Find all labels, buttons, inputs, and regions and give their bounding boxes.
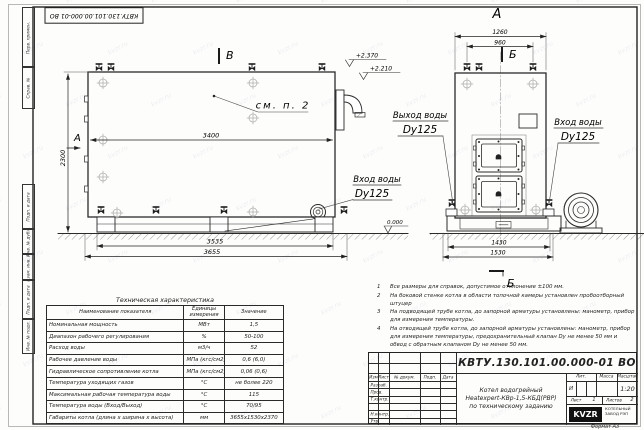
valve-icons-side bbox=[96, 64, 347, 214]
spec-header-value: Значение bbox=[224, 306, 283, 320]
drawing-sheet: kvzr.rukvzr.rukvzr.rukvzr.rukvzr.rukvzr.… bbox=[0, 0, 644, 430]
boiler-body-side bbox=[88, 72, 335, 217]
notes-list: 1Все размеры для справок, допустимое отк… bbox=[377, 284, 635, 351]
spec-table-title: Техническая характеристика bbox=[46, 297, 284, 304]
lit-value: И bbox=[569, 386, 573, 392]
svg-text:см. п. 2: см. п. 2 bbox=[256, 101, 311, 112]
elevation-marks: +2.370 +2.210 0.000 bbox=[346, 53, 409, 234]
row-label-utv: Утв. bbox=[371, 419, 380, 424]
mass-header: Масса bbox=[600, 375, 614, 380]
side-view: В см. п. 2 А +2.370 +2.210 0.000 bbox=[58, 49, 408, 261]
rev-header-list: Лист bbox=[378, 375, 389, 380]
callout-see-note: см. п. 2 bbox=[213, 95, 311, 112]
product-name: Котел водогрейный Heatexpert-КВр-1,5-КБД… bbox=[456, 373, 566, 425]
door-handle-icon bbox=[496, 154, 502, 159]
title-block: Изм Лист № докум. Подп. Дата Разраб. Про… bbox=[368, 352, 637, 424]
ground-hatch-front bbox=[430, 234, 644, 240]
svg-text:Выход воды: Выход воды bbox=[393, 111, 447, 121]
rev-header-podp: Подп. bbox=[424, 375, 437, 380]
table-row: Диапазон рабочего регулирования%50-100 bbox=[47, 331, 284, 343]
table-row: Габариты котла (длина х ширина х высота)… bbox=[47, 412, 284, 424]
svg-text:А: А bbox=[73, 133, 81, 144]
sheet-value: 1 bbox=[592, 397, 595, 403]
rotated-doc-number: КВТУ.130.101.00.000-01 ВО bbox=[50, 12, 139, 19]
svg-text:3400: 3400 bbox=[203, 132, 220, 140]
margin-box-sprav: Справ. № bbox=[22, 66, 35, 109]
table-row: Расход водым3/ч52 bbox=[47, 343, 284, 355]
spec-header-name: Наименование показателя bbox=[47, 306, 184, 320]
flue-duct bbox=[336, 90, 365, 130]
side-inlet-label: Вход воды Dy125 bbox=[319, 175, 401, 209]
lifting-mark-icon bbox=[461, 78, 473, 90]
table-row: Рабочее давление водыМПа (кгс/см2)0,6 (6… bbox=[47, 354, 284, 366]
blower-fan bbox=[560, 193, 602, 233]
table-row: Температура уходящих газов°Сне более 220 bbox=[47, 377, 284, 389]
format-label: Формат А3 bbox=[572, 424, 638, 430]
svg-text:+2.210: +2.210 bbox=[370, 66, 392, 73]
svg-text:Вход воды: Вход воды bbox=[353, 175, 401, 185]
section-mark-b-top: Б bbox=[502, 48, 517, 61]
sheet-label: Лист bbox=[571, 398, 582, 403]
svg-text:Dy125: Dy125 bbox=[403, 124, 438, 136]
front-dimensions: 1260 960 1430 1530 bbox=[443, 29, 553, 261]
row-label-tkontr: Т.контр. bbox=[371, 397, 389, 402]
front-view-title: А bbox=[492, 7, 502, 22]
note-item: 4На отводящей трубе котла, до запорной а… bbox=[377, 326, 635, 349]
svg-text:3655: 3655 bbox=[204, 248, 221, 256]
view-arrow-a: А bbox=[67, 133, 81, 148]
margin-box-inv-podl: Инв. № подл. bbox=[22, 318, 35, 354]
svg-text:3535: 3535 bbox=[207, 238, 224, 246]
svg-text:Вход воды: Вход воды bbox=[554, 118, 602, 128]
row-label-prov: Пров. bbox=[371, 390, 383, 395]
svg-text:1260: 1260 bbox=[492, 29, 507, 36]
kvzr-logo: KVZR bbox=[569, 407, 602, 422]
front-view: А bbox=[393, 7, 644, 290]
svg-text:2300: 2300 bbox=[59, 150, 67, 167]
note-item: 3На подводящей трубе котла, до запорной … bbox=[377, 309, 635, 325]
svg-text:960: 960 bbox=[494, 40, 506, 47]
lifting-mark-icon bbox=[530, 204, 542, 216]
table-row: Температура воды (Вход/Выход)°С70/95 bbox=[47, 401, 284, 413]
spec-table: Наименование показателя Единицы измерени… bbox=[46, 305, 284, 424]
margin-box-podp-data-1: Подп. и дата bbox=[22, 184, 35, 230]
sheets-label: Листов bbox=[606, 398, 622, 403]
lifting-mark-icon bbox=[459, 204, 471, 216]
svg-text:Dy125: Dy125 bbox=[355, 188, 390, 200]
note-item: 1Все размеры для справок, допустимое отк… bbox=[377, 284, 635, 292]
rev-header-izm: Изм bbox=[369, 375, 378, 380]
margin-box-inv-dubl: Инв. № дубл. bbox=[22, 228, 35, 255]
doc-number: КВТУ.130.101.00.000-01 ВО bbox=[456, 353, 638, 373]
table-row: Гидравлическое сопротивление котлаМПа (к… bbox=[47, 366, 284, 378]
sight-glass bbox=[519, 114, 537, 128]
margin-box-podp-data-2: Подп. и дата bbox=[22, 279, 35, 320]
lit-header: Лит. bbox=[576, 375, 586, 380]
spec-header-units: Единицы измерения bbox=[184, 306, 224, 320]
margin-box-perv-primen: Перв. примен. bbox=[22, 7, 35, 68]
furnace-door-lower bbox=[473, 176, 524, 212]
spec-header-row: Наименование показателя Единицы измерени… bbox=[47, 306, 284, 320]
scale-header: Масштаб bbox=[617, 375, 638, 380]
sheets-value: 2 bbox=[630, 397, 633, 403]
svg-text:1530: 1530 bbox=[490, 250, 505, 257]
scale-value: 1:20 bbox=[620, 385, 635, 393]
row-label-nkontr: Н.контр. bbox=[371, 412, 390, 417]
base-frame-front bbox=[447, 216, 561, 231]
lifting-mark-icon bbox=[527, 78, 539, 90]
rev-header-data: Дата bbox=[443, 375, 454, 380]
margin-box-vzam-inv: Взам. инв. № bbox=[22, 253, 35, 281]
front-outlet-label: Выход воды Dy125 bbox=[393, 111, 453, 204]
lifting-mark-icons bbox=[97, 77, 259, 219]
row-label-razrab: Разраб. bbox=[371, 382, 387, 387]
svg-text:1430: 1430 bbox=[491, 240, 506, 247]
front-inlet-label: Вход воды Dy125 bbox=[549, 118, 603, 204]
base-frame-side bbox=[97, 217, 333, 232]
company-name: КОТЕЛЬНЫЙ ЗАВОД РЭП bbox=[605, 407, 636, 423]
table-row: Максимальная рабочая температура воды°С1… bbox=[47, 389, 284, 401]
furnace-door-upper bbox=[473, 139, 524, 172]
section-label-v: В bbox=[226, 49, 234, 62]
svg-text:0.000: 0.000 bbox=[387, 220, 403, 226]
table-row: Номинальная мощностьМВт1,5 bbox=[47, 320, 284, 332]
spec-table-block: Техническая характеристика Наименование … bbox=[46, 297, 284, 424]
ground-hatch-side bbox=[58, 234, 408, 240]
svg-text:Б: Б bbox=[509, 48, 517, 61]
svg-text:Dy125: Dy125 bbox=[561, 131, 596, 143]
svg-text:+2.370: +2.370 bbox=[356, 53, 378, 60]
rev-header-doc: № докум. bbox=[394, 375, 415, 380]
note-item: 2На боковой стенке котла в области топоч… bbox=[377, 293, 635, 309]
